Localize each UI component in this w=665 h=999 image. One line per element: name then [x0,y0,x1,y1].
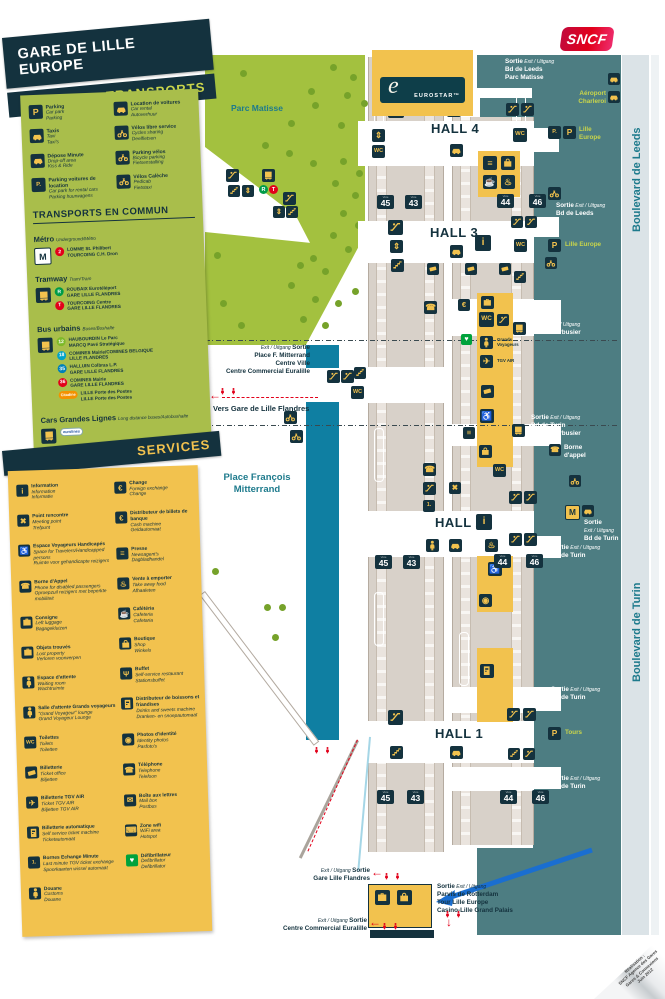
line-badge: R [55,287,64,296]
bus-icon [513,322,526,335]
lounge-icon [480,336,493,349]
tree-icon [350,74,357,81]
services-legend: iInformationInformationInformatie✖Point … [8,465,213,937]
direction-arrow-icon: ← [369,916,381,928]
legend-item: ✈Billetterie TGV AIRTicket TGV AIRBiljet… [26,794,121,814]
buffet-icon: Ψ [120,668,132,680]
line-destinations: COMINES MairieGARE LILLE FLANDRES [70,376,124,389]
tree-icon [297,262,304,269]
legend-item-text: PresseNewsagent'sDagbladhandel [131,546,164,564]
legend-item-text: Salle d'attente Grands voyageurs"Grand V… [38,704,116,724]
drop-off-icon [450,245,463,258]
elevator-icon: ⇕ [390,240,403,253]
legend-item-text: Objets trouvésLost propertyVerloren voor… [36,645,81,663]
shop-icon [119,638,131,650]
lounge-icon [23,706,35,718]
legend-item-text: DouaneCustomsDouane [44,886,63,904]
credit-text: Réalisation :SNCF Agence des GaresGares … [609,940,665,999]
borne-appel-label: Borned'appel [564,444,586,460]
legend-item-text: Vélos CalèchePedicabFietstaxi [133,173,168,198]
tree-icon [340,158,347,165]
pedestrian-icon [394,868,401,878]
vending-machine-icon [121,698,133,710]
legend-item-text: Point rencontreMeeting pointTrefpunt [32,513,69,531]
tree-icon [310,160,317,167]
street-label: Boulevard de Turin [631,562,643,682]
left-luggage-icon [375,890,390,905]
transit-section: Bus urbainsBuses/Bushalte12HAUBOURDIN Le… [37,313,204,406]
toilets-icon: WC [514,239,527,252]
currency-exchange-icon: € [114,481,126,493]
escalator-icon [509,491,522,504]
tree-icon [279,604,286,611]
hall-label: HALL 2 [435,515,483,530]
pedestrian-icon [455,906,462,916]
legend-item: ⌨Zone wifiWiFi areaHotspot [125,822,207,842]
line-badge: 2 [55,247,64,256]
parking-lille-europe-2: Lille Europe [565,241,601,249]
transports-legend: PParkingCar parkParkingLocation de voitu… [20,89,212,457]
transit-lines: eurolines [60,427,86,443]
legend-item-text: Vélos libre serviceCycles sharingDeelfie… [131,124,176,143]
bike-parking-icon [290,430,303,443]
escalator-icon [388,220,403,235]
tree-icon [335,300,342,307]
information-icon: i [16,484,28,496]
transports-commun-title: TRANSPORTS EN COMMUN [33,204,195,224]
legend-item-text: ToilettesToiletsToiletten [39,736,59,754]
ticket-machine-icon [27,827,39,839]
toilets-icon: WC [479,312,494,327]
tree-icon [300,316,307,323]
escalator-icon [388,710,403,725]
parking-icon: P [548,239,561,252]
ticket-office-icon [481,385,494,398]
platform-number: Voie44 [497,194,514,208]
pedestrian-ramp [199,591,319,746]
transit-line: TTOURCOING CentreGARE LILLE FLANDRES [55,299,121,313]
transit-line: 18COMINES Mairie/COMINES BELGIQUELILLE F… [57,347,153,362]
legend-item: €Distributeur de billets de banqueCash m… [115,509,198,534]
line-badge: 12 [56,337,65,346]
line-badge: Citadine [59,391,78,400]
platform-number: Voie43 [403,555,420,569]
drop-off-icon [450,746,463,759]
legend-item-text: Bornes Echange MinuteLast minute TGV tic… [43,854,114,873]
takeaway-icon: ♨ [117,577,129,589]
legend-item-text: ChangeForeign exchangeChange [129,480,168,498]
bike-parking-icon [569,475,581,487]
escalator-icon [524,491,537,504]
metro-icon: M [34,248,52,266]
cafeteria-icon: ☕ [483,175,497,189]
legend-item: ☕CafétériaCafeteriaCafetaria [118,605,200,625]
call-post-icon: ☎ [19,580,31,592]
aeroport-charleroi: AéroportCharleroi [578,90,606,106]
newsagent-icon: ≡ [483,156,497,170]
tree-icon [272,634,279,641]
taxi-icon [29,129,44,144]
defibrillator-icon: ♥ [461,334,472,345]
bike-parking-icon [115,150,130,165]
pedestrian-icon [230,383,237,393]
legend-item: Dépose MinuteDrop-off areaKiss & Ride [30,151,110,171]
eurostar-e-icon: e [388,77,399,100]
pedestrian-icon [313,742,320,752]
vers-gare-lille-flandres: Vers Gare de Lille Flandres [213,404,309,413]
legend-item: ☎Borne d'AppelPhone for disabled passeng… [19,578,115,604]
coach-icon [41,428,57,444]
rental-car-park-icon: P. [548,126,561,139]
direction-arrow-icon: ↓ [446,916,452,928]
legend-item-text: BuffetSelf-service restaurantStationsbuf… [135,666,184,685]
toilets-icon: WC [351,386,364,399]
parking-lille-europe-1: LilleEurope [579,126,601,142]
transit-section: MétroUnderground/MétroM2LOMME St. Philib… [33,223,198,265]
stairs-icon [514,271,526,283]
legend-item-text: Boîte aux lettresMail boxPostbus [139,792,178,810]
legend-item: P.Parking voitures de locationCar park f… [31,175,111,201]
tree-icon [264,604,271,611]
legend-item-text: Parking vélosBicycle parkingFietsenstall… [132,149,166,168]
place-francois-mitterrand-label: Place FrançoisMitterrand [197,472,317,496]
stairs-icon [228,185,240,197]
legend-item: ◉Photos d'identitéIdentity photosPasfoto… [122,731,204,751]
legend-item-text: ConsigneLeft luggageBagagekluizen [35,615,67,633]
cash-machine-icon: € [458,299,470,311]
line-badge: 35 [57,364,66,373]
legend-item-text: Dépose MinuteDrop-off areaKiss & Ride [47,152,84,171]
legend-item: Billetterie automatiqueSelf service tick… [27,824,122,844]
legend-item: Salle d'attente Grands voyageurs"Grand V… [23,704,118,724]
tree-icon [322,268,329,275]
lost-property-icon [21,646,33,658]
tree-icon [352,192,359,199]
taxi-icon [608,73,620,85]
transit-line: 12HAUBOURDIN Le ParcMARCQ Pavé Stratégiq… [56,334,152,349]
level-line [205,340,619,341]
legend-item: DouaneCustomsDouane [29,884,124,904]
escalator-icon [523,748,535,760]
legend-item-text: Vente à emporterTake away foodAfhaaleten [132,576,172,594]
ticket-machine-icon [480,664,494,678]
left-luggage-icon [20,616,32,628]
escalator-icon [525,216,537,228]
grands-voyageurs-label: GrandsVoyageurs [497,337,519,348]
photo-booth-icon: ◉ [479,594,492,607]
telephone-icon: ☎ [423,463,436,476]
legend-item: PParkingCar parkParking [29,102,109,122]
train-outline [374,592,384,646]
transit-lines: 2LOMME St. PhilibertTOURCOING C.H. Dron [55,245,118,264]
exit-place-mitterrand: Exit / Uitgang SortiePlace F. Mitterrand… [226,344,310,375]
legend-item: Vélos libre serviceCycles sharingDeelfie… [114,123,194,143]
legend-item: €ChangeForeign exchangeChange [114,479,196,499]
bus-icon [37,338,53,354]
legend-item: ConsigneLeft luggageBagagekluizen [20,613,115,633]
parking-icon: P [29,105,44,120]
line-badge: T [55,301,64,310]
tree-icon [212,568,219,575]
ticket-office-icon [25,766,37,778]
legend-item: ΨBuffetSelf-service restaurantStationsbu… [120,665,202,685]
escalator-icon [283,192,296,205]
tree-icon [288,282,295,289]
tree-icon [345,246,352,253]
legend-item: iInformationInformationInformatie [16,482,111,502]
parking-icon: P [548,727,561,740]
escalator-icon [524,533,537,546]
ticket-office-icon [499,263,511,275]
minute-exchange-icon: 1. [28,857,40,869]
pedestrian-icon [392,918,399,928]
line-destinations: HALLUIN Colbras L.P.GARE LILLE FLANDRES [69,362,123,375]
tram-icon [262,169,275,182]
line-destinations: LOMME St. PhilibertTOURCOING C.H. Dron [67,245,118,258]
platform-number: Voie46 [529,194,546,208]
platform-number: Voie43 [407,790,424,804]
platform-number: Voie46 [532,790,549,804]
platform-number: Voie44 [500,790,517,804]
tgv-air-icon: ✈ [26,797,38,809]
legend-item-text: Parking voitures de locationCar park for… [48,175,111,201]
stairs-icon [508,748,520,760]
transit-section: TramwayTram/TramRROUBAIX EurotéléportGAR… [35,263,201,315]
platform-number: Voie45 [377,195,394,209]
south-bar [370,930,434,938]
tree-icon [214,252,221,259]
tree-icon [340,210,347,217]
legend-item-text: TéléphoneTelephoneTelefoon [138,763,163,781]
legend-item-text: TaxisTaxiTaxi's [46,128,59,146]
line-destinations: LILLE Porte des PostesLILLE Porte des Po… [80,389,132,402]
escalator-icon [511,216,523,228]
tram-icon [36,288,52,304]
hall-concourse [358,367,448,403]
legend-item-text: Zone wifiWiFi areaHotspot [140,823,162,841]
legend-item-text: Photos d'identitéIdentity photosPasfoto'… [137,732,177,750]
taxi-icon [608,91,620,103]
legend-item: Location de voituresCar rentalAutoverhuu… [113,99,193,119]
legend-item-text: Billetterie TGV AIRTicket TGV AIRBiljett… [41,795,85,813]
transit-line: 36COMINES MairieGARE LILLE FLANDRES [58,374,154,389]
metro-icon: M [565,505,580,520]
parking-tours: Tours [565,729,582,737]
tree-icon [332,180,339,187]
escalator-icon [341,370,354,383]
tree-icon [322,322,329,329]
street-label: Boulevard de Leeds [631,112,643,232]
legend-item-text: Distributeur de boissons et friandisesDr… [136,696,204,721]
tree-icon [308,88,315,95]
mailbox-icon: ✉ [124,794,136,806]
toilets-icon: WC [493,464,506,477]
legend-item: ♿Espace Voyageurs HandicapésSpace for Tr… [18,542,114,568]
legend-item-text: ParkingCar parkParking [46,104,65,122]
drop-off-icon [450,144,463,157]
rental-car-park-icon: P. [31,178,46,193]
escalator-icon [497,314,509,326]
legend-item-text: CafétériaCafeteriaCafetaria [133,607,154,625]
legend-item-text: Espace d'attenteWaiting roomWachtruimte [37,675,76,693]
newsagent-icon: ≡ [463,427,475,439]
tgv-air-label: TGV AIR [497,358,514,363]
bike-share-icon [548,187,561,200]
tree-icon [286,150,293,157]
minute-exchange-icon: 1. [423,500,435,512]
tree-icon [356,170,363,177]
pedicab-icon [545,257,557,269]
transit-line: 35HALLUIN Colbras L.P.GARE LILLE FLANDRE… [57,361,153,376]
exit-av-le-corbusier: Sortie Exit / UitgangAv. Le Corbusier [531,321,581,337]
tree-icon [310,255,317,262]
toilets-icon: WC [372,145,385,158]
legend-item: Espace d'attenteWaiting roomWachtruimte [22,674,117,694]
legend-item: Parking vélosBicycle parkingFietsenstall… [115,148,195,168]
decoration: 12HAUBOURDIN Le ParcMARCQ Pavé Stratégiq… [37,332,203,406]
tree-icon [330,232,337,239]
pedestrian-icon [381,918,388,928]
left-luggage-icon [481,296,494,309]
transit-lines: 12HAUBOURDIN Le ParcMARCQ Pavé Stratégiq… [56,334,155,405]
legend-item-text: Borne d'AppelPhone for disabled passenge… [34,578,115,603]
elevator-icon: ⇕ [372,129,385,142]
sncf-logo: SNCF [559,27,614,51]
defibrillator-icon: ♥ [126,854,138,866]
line-destinations: TOURCOING CentreGARE LILLE FLANDRES [67,299,121,312]
legend-item: TaxisTaxiTaxi's [29,126,109,146]
legend-item-text: Location de voituresCar rentalAutoverhuu… [130,99,180,118]
escalator-icon [506,103,519,116]
tree-icon [330,64,337,71]
exit-gare-lille-flandres: Exit / Uitgang SortieGare Lille Flandres [313,867,370,883]
tgv-air-icon: ✈ [480,355,493,368]
legend-item: Objets trouvésLost propertyVerloren voor… [21,644,116,664]
legend-item-text: InformationInformationInformatie [31,484,58,502]
pedestrian-icon [383,868,390,878]
platform-number: Voie45 [377,790,394,804]
line-destinations: HAUBOURDIN Le ParcMARCQ Pavé Stratégique [68,335,124,348]
tree-icon [352,288,359,295]
elevator-icon: ⇕ [242,185,254,197]
train-outline [374,428,384,482]
newsagent-icon: ≡ [116,547,128,559]
pedestrian-icon [324,742,331,752]
shop-icon [397,890,412,905]
hall-label: HALL 1 [435,726,483,741]
waiting-room-icon [426,539,439,552]
legend-item: BilletterieTicket officeBiljetten [25,764,120,784]
shop-icon [501,156,515,170]
telephone-icon: ☎ [123,764,135,776]
hall-label: HALL 3 [430,225,478,240]
eurostar-wordmark: EUROSTAR™ [414,93,460,99]
street-strip-outer [651,55,659,935]
toilets-icon: WC [513,128,527,142]
viaduct-strip [306,345,339,740]
ticket-office-icon [427,263,439,275]
waiting-room-icon [22,676,34,688]
legend-item-text: DéfibrillateurDefibrillatorDefibrillator [141,853,172,871]
shop-icon [479,445,492,458]
line-badge: 36 [58,378,67,387]
tree-icon [312,102,319,109]
exit-bd-turin-corbusier: Sortie Exit / UitgangBd de TurinAv. Le C… [531,414,581,438]
line-badge: 18 [57,351,66,360]
escalator-icon [523,708,536,721]
tree-icon [220,300,227,307]
ticket-office-icon [465,263,477,275]
platform-number: Voie46 [526,554,543,568]
hall-concourse [446,767,534,791]
wifi-icon: ⌨ [125,824,137,836]
bus-icon [512,424,525,437]
legend-item-text: BilletterieTicket officeBiljetten [40,766,66,784]
legend-item-text: Billetterie automatiqueSelf service tick… [42,825,99,844]
line-badge: eurolines [60,427,83,436]
stairs-icon [391,259,404,272]
walk-route-flandres [222,397,318,398]
escalator-icon [507,708,520,721]
escalator-icon [327,370,340,383]
tram-line-badge: R [259,185,268,194]
walk-route-south [307,740,358,852]
escalator-icon [226,169,239,182]
escalator-icon [509,533,522,546]
decoration: RROUBAIX EurotéléportGARE LILLE FLANDRES… [36,282,201,315]
takeaway-icon: ♨ [485,539,498,552]
transit-lines: RROUBAIX EurotéléportGARE LILLE FLANDRES… [55,285,122,314]
tram-line-badge: T [269,185,278,194]
disabled-travellers-icon: ♿ [18,545,30,557]
legend-item: ♥DéfibrillateurDefibrillatorDefibrillato… [126,852,208,872]
tree-icon [238,322,245,329]
cafeteria-icon: ☕ [118,607,130,619]
tree-icon [240,70,247,77]
escalator-icon [423,482,436,495]
page-curl: Réalisation :SNCF Agence des GaresGares … [594,933,665,999]
transit-line: 2LOMME St. PhilibertTOURCOING C.H. Dron [55,245,118,258]
car-rental-icon [113,101,128,116]
transit-line: eurolines [60,427,86,436]
platform-number: Voie44 [494,554,511,568]
call-post-icon: ☎ [549,444,561,456]
platform-number: Voie45 [375,555,392,569]
exit-bd-leeds-parc-matisse: Sortie Exit / UitgangBd de LeedsParc Mat… [505,58,554,82]
legend-item-text: Espace Voyageurs HandicapésSpace for Tra… [33,542,114,567]
tree-icon [288,120,295,127]
meeting-point-icon: ✖ [449,482,461,494]
drop-off-icon [449,539,462,552]
hall-label: HALL 4 [431,121,479,136]
bike-share-icon [114,126,129,141]
disabled-travellers-icon: ♿ [480,409,494,423]
transit-line: CitadineLILLE Porte des PostesLILLE Port… [59,388,155,403]
legend-item: Distributeur de boissons et friandisesDr… [121,696,204,721]
direction-arrow-icon: ← [209,389,221,401]
tree-icon [344,92,351,99]
drop-off-icon [30,153,45,168]
pedicab-icon [116,174,131,189]
meeting-point-icon: ✖ [17,515,29,527]
parc-matisse-label: Parc Matisse [231,103,283,114]
legend-item: Vélos CalèchePedicabFietstaxi [116,172,196,198]
line-destinations: ROUBAIX EurotéléportGARE LILLE FLANDRES [67,285,121,298]
tree-icon [312,296,319,303]
stairs-icon [286,206,298,218]
legend-item-text: Distributeur de billets de banqueCash ma… [130,509,198,534]
stairs-icon [390,746,403,759]
